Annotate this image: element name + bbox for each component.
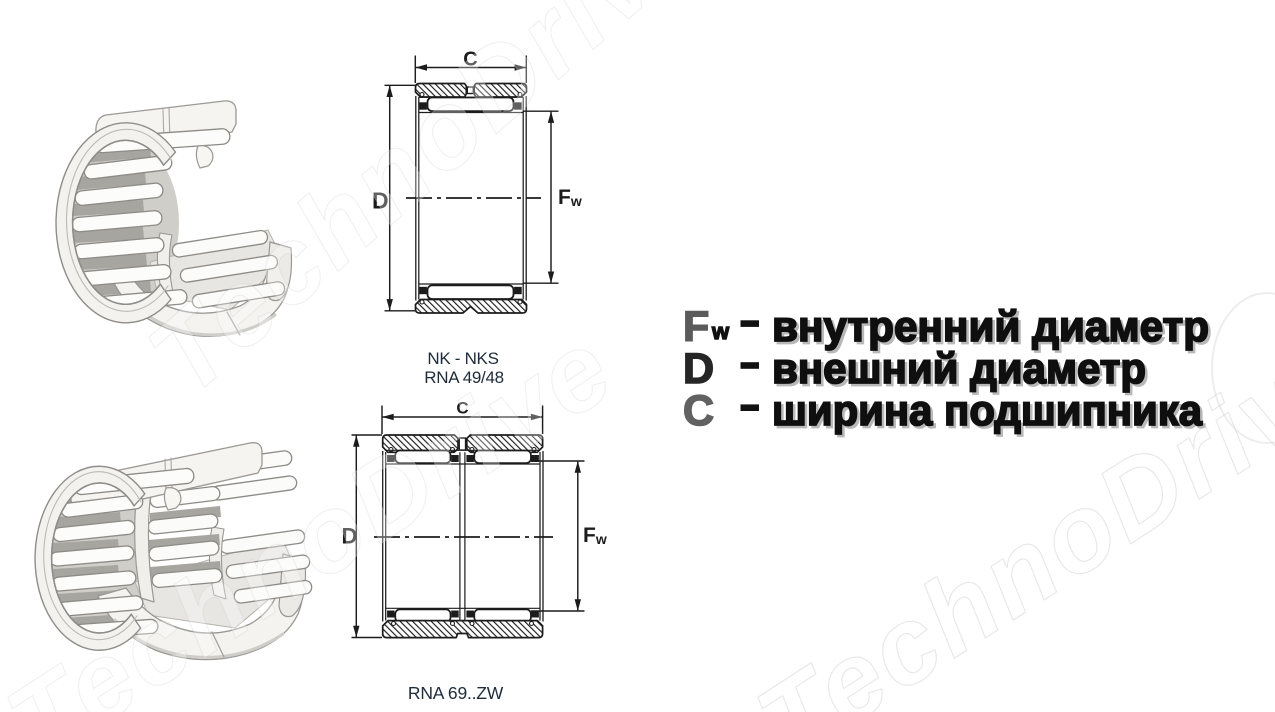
svg-text:Fw: Fw — [583, 524, 607, 547]
svg-text:C: C — [683, 387, 714, 435]
svg-text:внешний диаметр: внешний диаметр — [772, 345, 1146, 393]
svg-text:w: w — [711, 319, 730, 344]
svg-text:F: F — [683, 303, 709, 351]
svg-text:D: D — [683, 345, 714, 393]
svg-text:внутренний диаметр: внутренний диаметр — [772, 303, 1209, 351]
svg-text:Fw: Fw — [558, 186, 582, 209]
svg-text:RNA 69..ZW: RNA 69..ZW — [408, 683, 504, 703]
